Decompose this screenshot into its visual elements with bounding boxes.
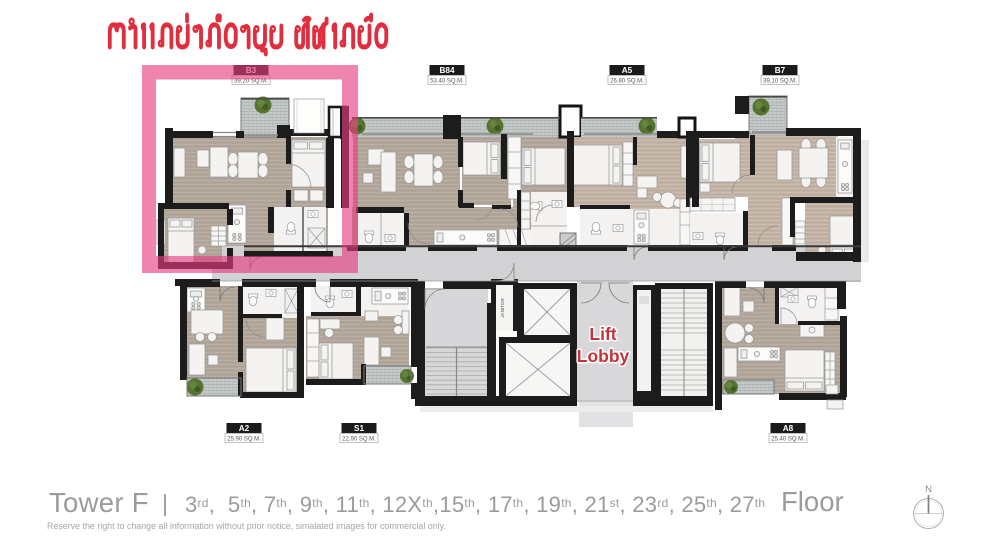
svg-text:Lift: Lift <box>589 324 616 344</box>
svg-text:JANITOR: JANITOR <box>500 298 505 318</box>
svg-text:Tower F: Tower F <box>49 487 149 518</box>
svg-text:22.90 SQ.M.: 22.90 SQ.M. <box>342 436 376 442</box>
svg-text:25.40 SQ.M.: 25.40 SQ.M. <box>771 436 805 442</box>
svg-text:25.90 SQ.M.: 25.90 SQ.M. <box>227 436 261 442</box>
svg-text:Floor: Floor <box>781 486 844 517</box>
svg-text:A2: A2 <box>239 424 250 433</box>
svg-text:53.40 SQ.M.: 53.40 SQ.M. <box>430 78 464 84</box>
svg-text:A5: A5 <box>622 66 633 75</box>
svg-text:B7: B7 <box>775 66 786 75</box>
svg-text:|: | <box>162 490 168 516</box>
svg-text:S1: S1 <box>354 424 364 433</box>
svg-text:N: N <box>925 484 932 495</box>
svg-text:26.80 SQ.M.: 26.80 SQ.M. <box>610 78 644 84</box>
svg-text:B84: B84 <box>439 66 454 75</box>
svg-text:Reserve the right to change al: Reserve the right to change all informat… <box>47 521 446 531</box>
svg-text:Lobby: Lobby <box>577 346 630 366</box>
svg-text:39.10 SQ.M.: 39.10 SQ.M. <box>763 78 797 84</box>
svg-text:A8: A8 <box>783 424 794 433</box>
svg-text:3rd, 5th, 7th, 9th, 11th, 12X: 3rd, 5th, 7th, 9th, 11th, 12Xth,15th, 17… <box>185 492 765 517</box>
